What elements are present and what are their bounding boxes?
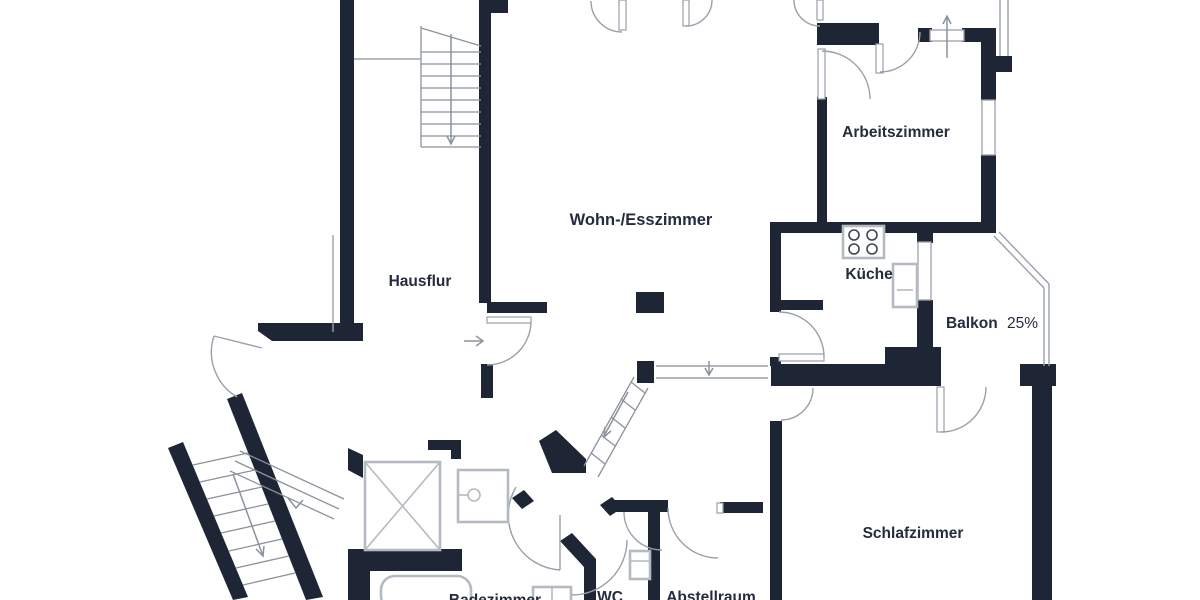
wall [770, 300, 823, 310]
stair-tread [236, 556, 289, 568]
stair-tread [591, 453, 605, 464]
room-label-balkon: Balkon 25% [946, 315, 1038, 332]
wc-basin-icon [630, 551, 650, 579]
wall [512, 490, 534, 509]
room-label-abstellraum: Abstellraum [666, 589, 756, 600]
stair-tread [214, 504, 268, 516]
door-leaf [487, 317, 531, 323]
sink-icon [893, 264, 917, 307]
wall [168, 442, 248, 600]
balcony-railing [994, 236, 1044, 288]
floorplan-stage: Hausflur Wohn-/Esszimmer Arbeitszimmer K… [0, 0, 1200, 600]
wall [348, 571, 370, 600]
wall [451, 440, 461, 459]
wall [340, 0, 354, 341]
wall [720, 502, 763, 513]
door-leaf [818, 49, 825, 99]
wall [637, 361, 654, 383]
stair-tread [601, 435, 615, 446]
wall [487, 302, 547, 313]
door-arc [211, 336, 237, 397]
door-leaf [937, 387, 944, 432]
balcony-railing [999, 232, 1049, 284]
wall [981, 42, 996, 100]
room-label-arbeitszimmer: Arbeitszimmer [842, 124, 950, 141]
door-jamb [717, 503, 723, 513]
balkon-percentage: 25% [1007, 315, 1038, 332]
staircase-split-level [584, 361, 768, 477]
wall [481, 364, 493, 398]
staircase-main [354, 26, 481, 147]
doors [211, 0, 986, 595]
wall [770, 222, 781, 312]
door-arc [668, 508, 718, 558]
entrance-arrow [464, 336, 483, 346]
door-arc [779, 312, 824, 357]
shower-icon [458, 470, 508, 522]
door-arc [794, 0, 820, 26]
door-arc [591, 1, 622, 32]
wall [770, 421, 782, 600]
room-label-badezimmer: Badezimmer [449, 592, 541, 600]
windows [333, 0, 1049, 366]
room-label-schlafzimmer: Schlafzimmer [863, 525, 964, 542]
door-arc [941, 387, 986, 432]
wall [348, 549, 462, 571]
door-arc [822, 51, 870, 99]
stair-direction-arrow [447, 34, 455, 144]
wall [348, 448, 363, 478]
stair-tread [229, 539, 282, 551]
wall [491, 0, 508, 13]
door-arc [686, 0, 712, 26]
door-arc [781, 388, 813, 420]
door-leaf [876, 44, 883, 73]
wall [615, 500, 668, 512]
room-label-hausflur: Hausflur [389, 273, 452, 290]
balkon-name: Balkon [946, 315, 998, 332]
window [982, 100, 995, 155]
wall [981, 155, 996, 233]
pillar [636, 292, 664, 313]
elevator-shaft-icon [365, 462, 440, 550]
stair-tread [207, 487, 262, 499]
wall [917, 300, 933, 350]
stair-tread [243, 573, 295, 585]
wall [428, 440, 453, 450]
wall [996, 56, 1012, 72]
door-leaf [779, 354, 824, 361]
door-leaf [817, 0, 823, 20]
room-label-kueche: Küche [845, 266, 893, 283]
stair-tread [631, 382, 645, 393]
room-label-wohn-esszimmer: Wohn-/Esszimmer [570, 211, 713, 229]
wall [771, 364, 941, 386]
wall [258, 323, 363, 341]
stove-icon [843, 226, 884, 258]
wall [885, 347, 941, 364]
floorplan-drawing: Hausflur Wohn-/Esszimmer Arbeitszimmer K… [0, 0, 1200, 600]
door-leaf [214, 336, 262, 348]
wall [817, 23, 879, 45]
stair-tread [200, 470, 255, 482]
wall [817, 97, 827, 223]
wall [1020, 364, 1056, 386]
room-label-wc: WC [597, 589, 623, 600]
wall [962, 28, 996, 42]
corridor-railing [656, 361, 768, 378]
window [918, 242, 931, 300]
door-arc [487, 321, 531, 365]
wall [1032, 386, 1052, 600]
door-leaf [619, 0, 626, 30]
wall [539, 430, 586, 473]
door-leaf [683, 0, 689, 26]
door-arc [880, 32, 920, 72]
stair-tread [221, 521, 275, 533]
